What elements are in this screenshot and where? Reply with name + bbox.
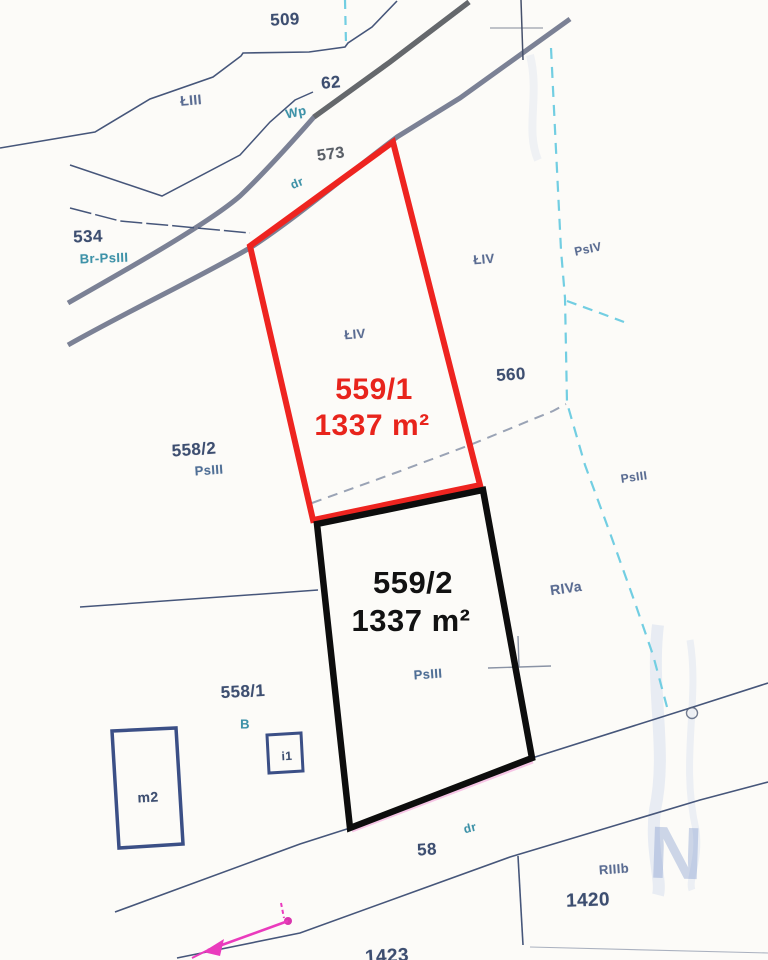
label-soil-liii: ŁIII (179, 91, 202, 109)
soil-contour-dashed (345, 0, 346, 44)
label-area-559-2: 1337 m² (352, 603, 471, 639)
label-soil-liv-in-559-1: ŁIV (344, 326, 367, 343)
label-area-559-1: 1337 m² (314, 409, 429, 443)
label-soil-liv-right: ŁIV (473, 251, 496, 268)
label-parcel-1423: 1423 (365, 945, 410, 960)
soil-contour-dashed (551, 48, 667, 707)
label-road-573: 573 (316, 144, 346, 166)
watermark-n: N (648, 810, 705, 897)
label-parcel-509: 509 (270, 9, 301, 31)
label-parcel-62: 62 (320, 72, 341, 94)
scan-smudge (530, 55, 538, 160)
pink-arrowhead (203, 939, 224, 956)
label-soil-psiii-559-2: PsIII (413, 666, 443, 683)
label-building-m2: m2 (137, 788, 159, 805)
label-parcel-558-1: 558/1 (220, 681, 266, 703)
road58-edge-north (532, 683, 768, 758)
pink-dash (281, 903, 284, 918)
label-soil-psiii-558-2: PsIII (194, 462, 224, 479)
road-edge-north-dark-segment (314, 2, 469, 117)
label-parcel-58: 58 (416, 839, 437, 860)
label-parcel-560: 560 (496, 364, 527, 386)
label-building-i1: i1 (281, 749, 293, 764)
label-use-b: B (240, 717, 250, 732)
cadastral-map: 509 62 Wp 573 dr ŁIII 534 Br-PsIII ŁIV Ł… (0, 0, 768, 960)
boundary-line (80, 590, 318, 607)
label-parcel-559-2: 559/2 (373, 565, 453, 601)
soil-contour-dashed-branch (567, 301, 624, 322)
road58-edge-north (115, 828, 350, 912)
label-road-use-dr-bottom: dr (462, 820, 478, 837)
label-soil-riiib: RIIIb (598, 860, 629, 877)
label-parcel-1420: 1420 (566, 889, 611, 913)
label-parcel-558-2: 558/2 (171, 438, 217, 461)
label-parcel-534: 534 (73, 226, 103, 247)
boundary-line-1420 (518, 856, 523, 945)
scan-fringe (352, 762, 533, 831)
parcel-559-2-outline (317, 490, 532, 828)
survey-tick (518, 636, 519, 667)
boundary-line-faint (530, 947, 768, 953)
label-soil-br-psiii: Br-PsIII (79, 250, 128, 267)
road-edge-south (68, 19, 570, 345)
label-parcel-559-1: 559/1 (335, 373, 413, 407)
